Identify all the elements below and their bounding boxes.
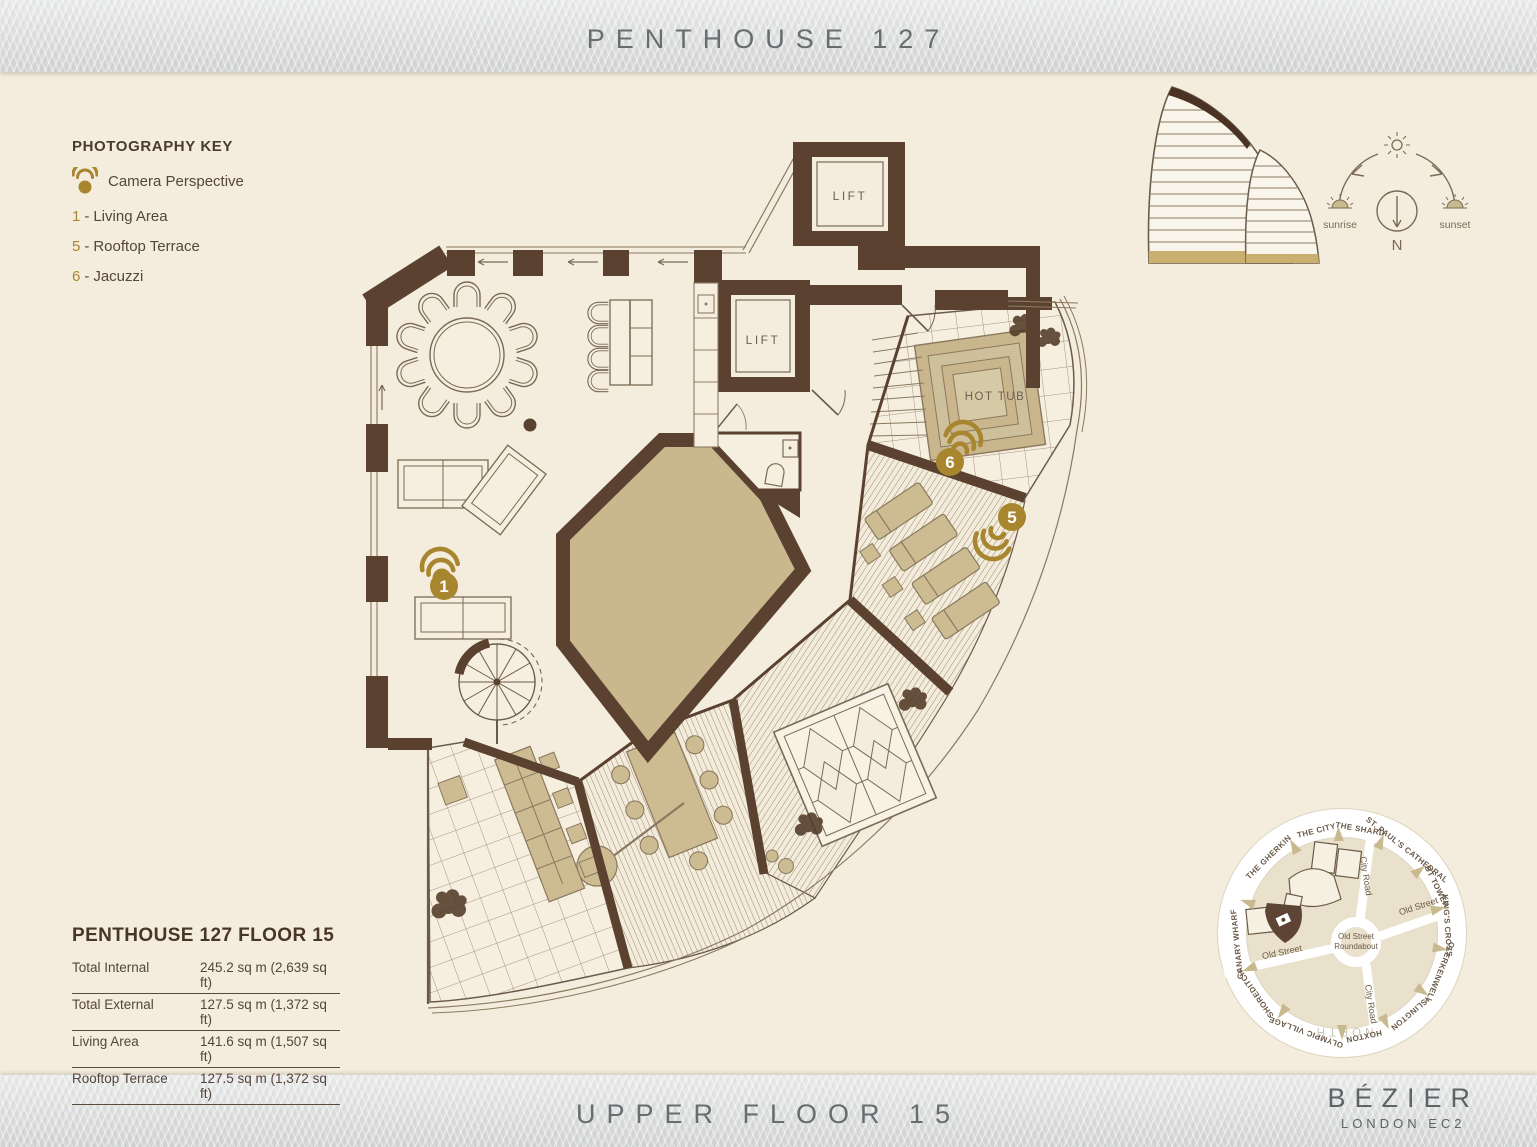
building-elevation-icon (1147, 84, 1323, 264)
lift-upper: LIFT (793, 142, 905, 270)
brochure-page: PENTHOUSE 127 UPPER FLOOR 15 BÉZIER LOND… (0, 0, 1537, 1147)
bar-counter (588, 300, 652, 392)
camera-marker-1: 1 (419, 546, 459, 600)
sun-icon (1384, 132, 1410, 158)
spiral-staircase (459, 639, 542, 744)
sofa-straight (415, 597, 511, 639)
lift-upper-label: LIFT (833, 189, 868, 203)
sunset-icon (1442, 194, 1468, 208)
svg-text:1: 1 (439, 577, 448, 596)
lift-lower: LIFT (716, 280, 810, 392)
sunset-label: sunset (1440, 219, 1471, 231)
north-arrow (1393, 196, 1401, 227)
corridor-wall (743, 152, 797, 250)
side-table (779, 859, 794, 874)
location-map: City Road City Road Old Street Old Stree… (1218, 809, 1467, 1058)
floor-plan: HOT TUB (366, 142, 1087, 1013)
svg-text:6: 6 (945, 453, 954, 472)
roundabout-label-2: Roundabout (1334, 942, 1378, 951)
lift-lower-label: LIFT (746, 333, 781, 347)
side-table (766, 850, 778, 862)
north-label: N (1392, 237, 1403, 254)
dining-table-round (394, 282, 541, 428)
sofa-l-shape (398, 445, 546, 535)
roundabout-label-1: Old Street (1338, 932, 1375, 941)
sunrise-label: sunrise (1323, 219, 1357, 231)
sun-path-compass (1327, 132, 1468, 231)
floor-plan-drawing: HOT TUB (0, 0, 1537, 1147)
svg-text:5: 5 (1007, 508, 1016, 527)
sunrise-icon (1327, 194, 1353, 208)
wc-door (737, 404, 746, 430)
structural-column (524, 419, 537, 432)
kitchen-units (694, 283, 718, 447)
hot-tub-label: HOT TUB (965, 391, 1026, 403)
